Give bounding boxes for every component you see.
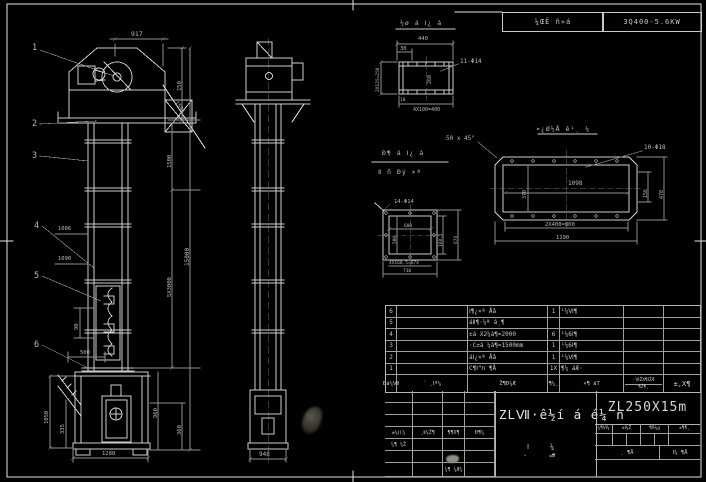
sheet-right-label: Ⅰ¼ ¶Å [660, 446, 700, 460]
dim-boot-width: 1280 [102, 451, 115, 457]
dim-total-height: 15000 [184, 248, 191, 266]
flange-title-bottom: Ⅱ ñ Ðý ×ª [378, 168, 422, 176]
detail-spout [490, 134, 642, 227]
dim-bucket-len: 500 [80, 350, 90, 356]
bom-cell-no: 1 [386, 364, 397, 376]
bom-header-weight-bottom: ¶Ž¶¸ [625, 385, 662, 391]
header-band-cell-right: 3Q400-5.6KW [602, 12, 702, 32]
detail-flange-texts: Ð¶ á Ⅰ¿ á Ⅱ ñ Ðý ×ª 14-Φ14 600 500 168.5… [378, 149, 459, 274]
header-band-left-label: ¼ŒÊ ñ»á [535, 18, 572, 26]
bom-cell-no: 5 [386, 318, 397, 330]
callout-2: 2 [32, 119, 37, 129]
scale-cell: ¼¶Ⅵ¼ [595, 424, 613, 434]
scale-cell: ±¶¶¸ [669, 424, 700, 434]
bom-cell-weight [624, 318, 664, 330]
dim-left-b: 1090 [58, 256, 71, 262]
bom-cell-qty: 1 [548, 341, 560, 353]
bom-cell-note [664, 306, 700, 318]
approval-label: ±¼Ⅰ(¼ [385, 427, 413, 439]
dim-spout-overall: 1190 [556, 235, 569, 241]
bom-header-name: Ž¶Ð¼Æ [468, 375, 548, 392]
sheet-left-label: ¸ ¶Å [595, 446, 660, 460]
dim-30: 30 [400, 46, 407, 52]
dim-2x125: 2X125=250 [375, 67, 381, 92]
callout-4: 4 [34, 221, 39, 231]
bom-cell-qty: 1 [548, 306, 560, 318]
bom-cell-code [397, 352, 468, 364]
bom-cell-name: ·C±á ¼á¶=1500mm [468, 341, 548, 353]
callout-6: 6 [34, 340, 39, 350]
bucket-detail [96, 286, 120, 360]
approval-label: ¶¶X¶ [443, 427, 465, 439]
titleblock-right-block: ZL250X15m ¼¶Ⅵ¼ ±Ⅰ¼Ž ¶Å¼g ±¶¶¸ ¸ ¶Å Ⅰ¼ ¶Å [595, 391, 700, 477]
callout-1: 1 [32, 43, 37, 53]
bom-cell-weight [624, 364, 664, 376]
spout-title: ¤¿Ø½Å ê¹¸ ¼ [536, 124, 590, 133]
dim-spout-right-inner: 156 [643, 189, 649, 198]
dim-top-width: 917 [131, 30, 143, 38]
bom-cell-material: ¹¼6Ⅰ¶ [560, 329, 624, 341]
bom-header-material: ×¶ áT [560, 375, 624, 392]
dim-boot-right-b: 360 [177, 425, 183, 435]
header-band-cell-left: ¼ŒÊ ñ»á [502, 12, 604, 32]
drawing-title: ZLⅦ·ê½í á é¼ ñ [499, 407, 593, 422]
bom-cell-material: ¹¼Ⅵ¶ [560, 352, 624, 364]
bom-cell-qty: 1 [548, 352, 560, 364]
dim-1098: 1098 [568, 180, 583, 187]
dim-bucket-pitch: 90 [74, 323, 80, 330]
scale-cell: ±Ⅰ¼Ž [613, 424, 641, 434]
side-view [236, 38, 310, 462]
dim-4x100: 4X100=400 [413, 107, 440, 113]
dim-10-phi18: 10-Φ18 [644, 144, 666, 151]
titleblock-drawing-title-cell: ZLⅦ·ê½í á é¼ ñ Ⅰ¸ ¼¶ [495, 391, 597, 477]
bom-cell-name: áⅠ¿×ª Åâ [468, 352, 548, 364]
bom-cell-note [664, 329, 700, 341]
bom-cell-material [560, 318, 624, 330]
dim-440: 440 [418, 36, 428, 42]
bom-cell-name: Ⅰ¶¿×ª Åâ [468, 306, 548, 318]
dim-chamfer: 50 x 45° [446, 135, 475, 142]
dim-spout-left: 370 [522, 190, 528, 199]
bom-cell-no: 2 [386, 352, 397, 364]
dim-260: 260 [427, 75, 433, 84]
dim-boot-left-b: 335 [60, 424, 66, 434]
sheet-row: ¸ ¶Å Ⅰ¼ ¶Å [595, 446, 700, 460]
bom-cell-code [397, 329, 468, 341]
bom-cell-code [397, 364, 468, 376]
bom-cell-note [664, 341, 700, 353]
detail-head-title: ½ø á Ⅰ¿ á [400, 19, 442, 27]
callout-5: 5 [34, 271, 39, 281]
bom-cell-name: ±á X2¼á¶=2000 [468, 329, 548, 341]
header-band-right-label: 3Q400-5.6KW [623, 18, 680, 26]
bom-cell-weight [624, 306, 664, 318]
bom-cell-note [664, 364, 700, 376]
flange-title-top: Ð¶ á Ⅰ¿ á [382, 149, 424, 157]
bom-cell-note [664, 352, 700, 364]
detail-spout-texts: ¤¿Ø½Å ê¹¸ ¼ 50 x 45° 10-Φ18 1098 370 156… [446, 124, 666, 241]
detail-flange [372, 162, 448, 266]
bom-cell-note [664, 318, 700, 330]
detail-head-section-dims [379, 41, 458, 107]
bom-cell-weight [624, 341, 664, 353]
bom-cell-qty: 1X [548, 364, 560, 376]
dim-head-height: 150 [177, 81, 183, 91]
bom-header-no: Ðá¼Ⅶ [386, 375, 397, 392]
dim-mid-sections: 5X3000 [167, 277, 173, 297]
bom-cell-no: 4 [386, 329, 397, 341]
scale-values-row [595, 434, 700, 446]
callout-3: 3 [32, 151, 37, 161]
bom-header-weight-top: ·ⅥŽX¶ⅠŽÆ [625, 377, 662, 385]
bom-cell-code [397, 306, 468, 318]
bom-cell-weight [624, 352, 664, 364]
bom-cell-material: ¹¼Ⅵ¶ [560, 306, 624, 318]
dim-spout-pitch: 2X400=800 [545, 222, 575, 228]
bom-cell-name: áⅡ¶·¼ª á¸¶ [468, 318, 548, 330]
dim-flange-right-inner: 168.5 [438, 233, 444, 247]
model-number: ZL250X15m [595, 391, 700, 425]
dim-left-a: 1086 [58, 226, 71, 232]
bom-cell-material: ¶¼ áÆ· [560, 364, 624, 376]
design-label: ¼¶ ¼Ž [385, 439, 413, 451]
dim-spout-right-outer: 470 [659, 190, 665, 199]
check-label: ¼¶ ¼Æ¼ [443, 463, 465, 477]
dim-upper-section: 1500 [167, 155, 173, 168]
cad-drawing-canvas: 917 150 1595 1500 5X3000 15000 960 360 1… [0, 0, 706, 482]
dim-side-base-width: 948 [259, 451, 270, 458]
bom-header-qty: ¶¼¸ [548, 375, 560, 392]
bom-cell-weight [624, 329, 664, 341]
bom-cell-qty: 6 [548, 329, 560, 341]
bom-cell-qty [548, 318, 560, 330]
bom-header-weight: ·ⅥŽX¶ⅠŽÆ ¶Ž¶¸ [624, 375, 664, 392]
bom-cell-code [397, 341, 468, 353]
dim-flange-right-outer: 674 [453, 236, 459, 244]
approval-label: Ð¶¼ [465, 427, 495, 439]
dim-boot-right-a: 960 [153, 408, 159, 418]
scale-row: ¼¶Ⅵ¼ ±Ⅰ¼Ž ¶Å¼g ±¶¶¸ [595, 424, 700, 434]
dim-boot-left-a: 1050 [44, 411, 50, 424]
dim-flange-pitch: 4X168.5=674 [389, 260, 419, 266]
dim-11-phi14: 11-Φ14 [460, 58, 482, 65]
bom-cell-code [397, 318, 468, 330]
bom-header-code: ´ ¸Ⅰº¼ [397, 375, 468, 392]
scale-cell: ¶Å¼g [641, 424, 669, 434]
bom-cell-material: ¹¼6Ⅰ¶ [560, 341, 624, 353]
dim-flange-overall: 730 [403, 268, 411, 274]
signature-mark [446, 455, 459, 463]
title-vertical-label-a: Ⅰ¸ [524, 443, 532, 459]
approval-label: ¸Ⅱ¼Ž¶ [413, 427, 443, 439]
bom-cell-name: C¶Ⅰʺת ¶Å [468, 364, 548, 376]
title-vertical-label-b: ¼¶ [548, 443, 556, 459]
dim-flange-inner-h: 500 [392, 236, 398, 244]
bom-header-note: ±,X¶ [664, 375, 700, 392]
dim-flange-inner-w: 600 [404, 223, 412, 229]
dim-corner-10: 10 [400, 97, 406, 103]
dim-14-phi14: 14-Φ14 [394, 199, 415, 205]
titleblock-left-grid: ±¼Ⅰ(¼ ¸Ⅱ¼Ž¶ ¶¶X¶ Ð¶¼ ¼¶ ¼Ž ¼¶ ¼Æ¼ [385, 391, 495, 477]
bom-cell-no: 6 [386, 306, 397, 318]
bom-table: 6 Ⅰ¶¿×ª Åâ 1 ¹¼Ⅵ¶ 5 áⅡ¶·¼ª á¸¶ 4 ±á X2¼á… [385, 305, 701, 393]
bom-cell-no: 3 [386, 341, 397, 353]
